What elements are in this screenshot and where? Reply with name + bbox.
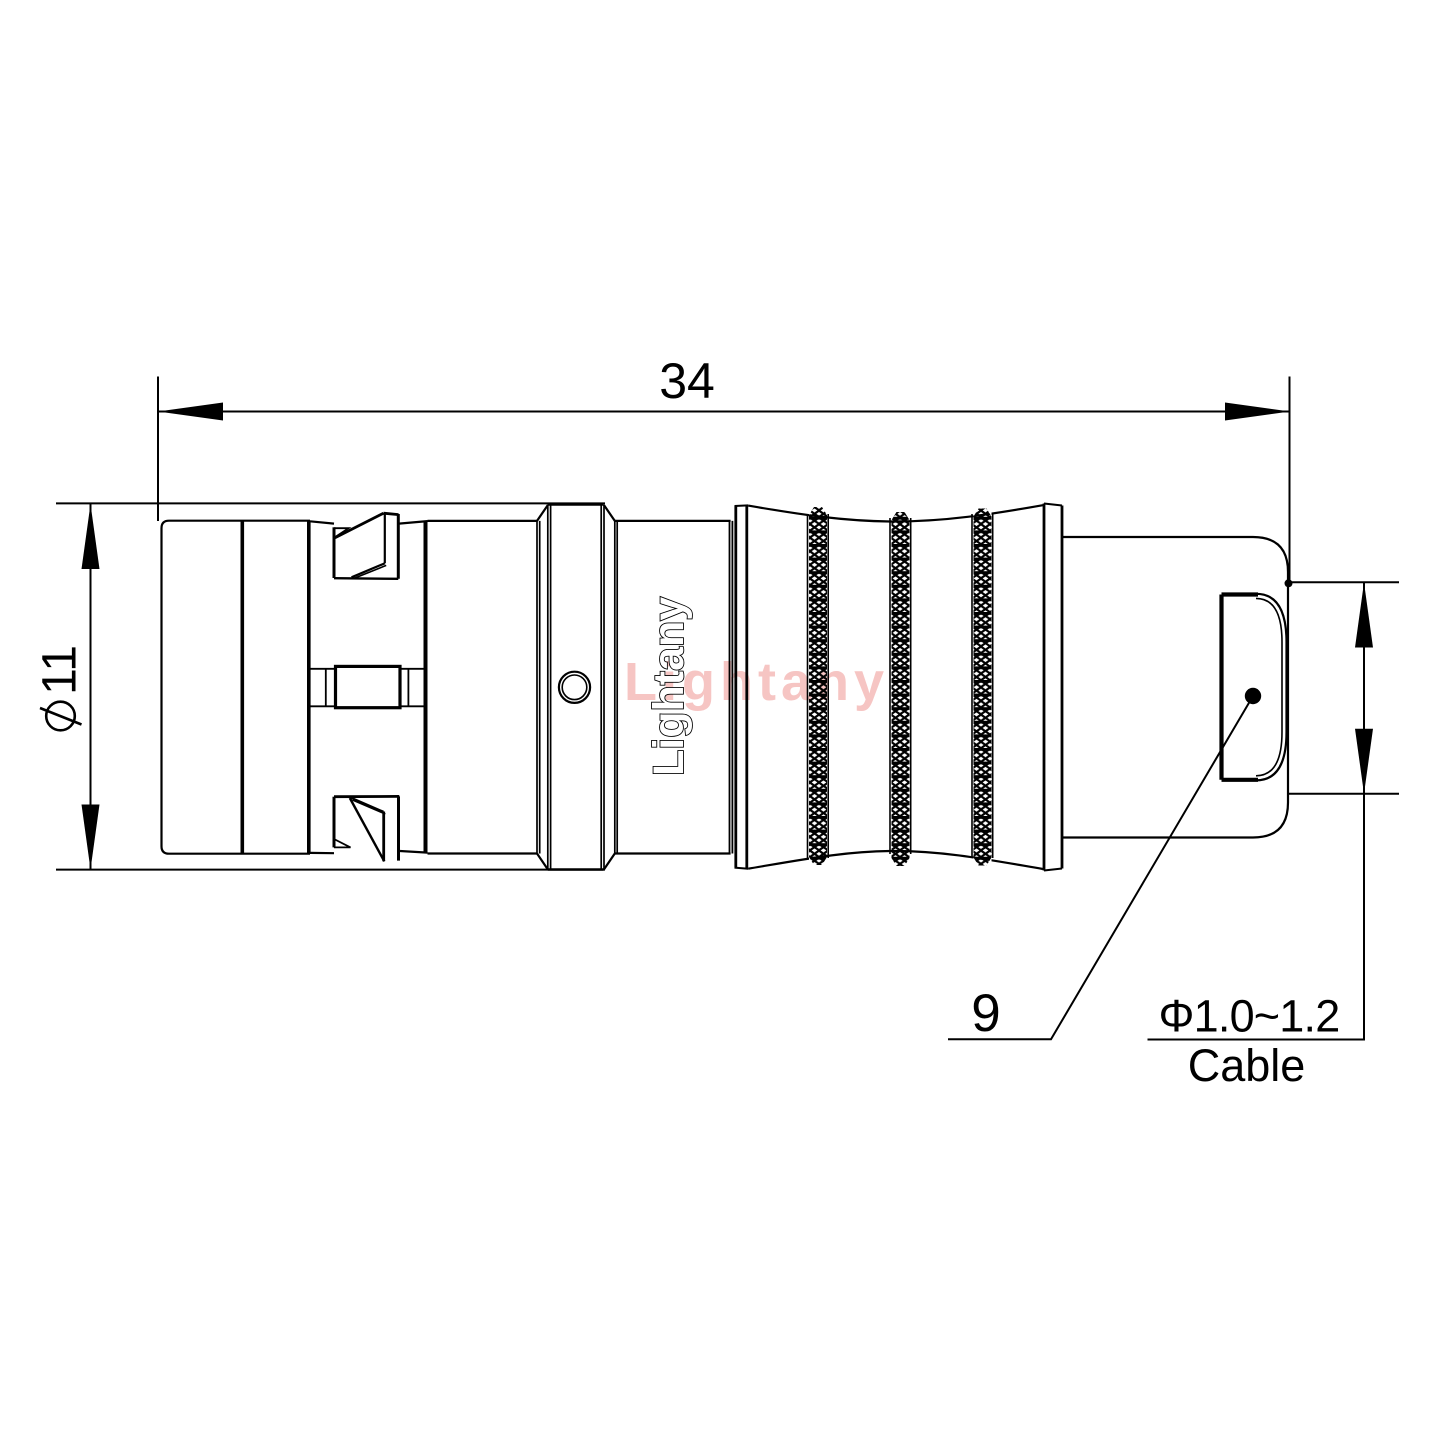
svg-text:Lightany: Lightany [645, 597, 693, 776]
svg-text:11: 11 [34, 645, 87, 695]
svg-text:34: 34 [659, 353, 715, 409]
svg-text:Cable: Cable [1188, 1040, 1306, 1091]
svg-text:9: 9 [971, 984, 1000, 1043]
svg-text:Φ1.0~1.2: Φ1.0~1.2 [1159, 991, 1340, 1042]
